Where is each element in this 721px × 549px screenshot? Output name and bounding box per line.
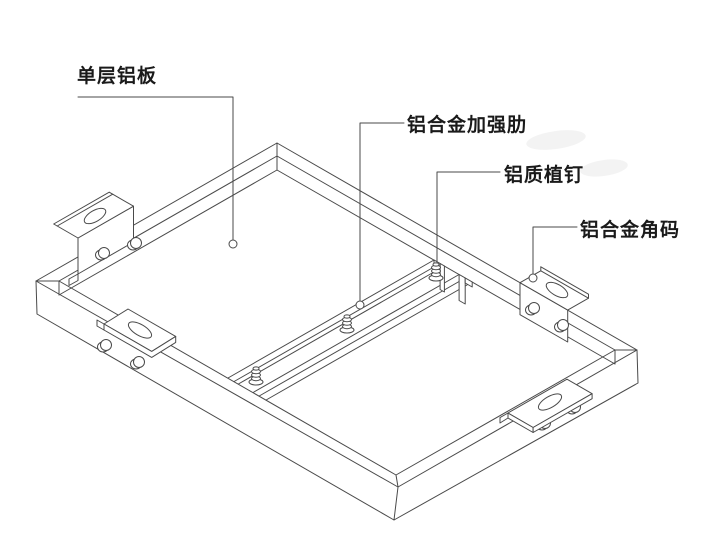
technical-diagram: 单层铝板 铝合金加强肋 铝质植钉 铝合金角码 (0, 0, 721, 549)
stud-3 (249, 367, 263, 385)
stud-2 (340, 315, 354, 333)
corner-bracket-2 (97, 309, 176, 369)
label-aluminum-stud: 铝质植钉 (504, 160, 584, 187)
corner-bracket-1 (54, 192, 142, 285)
corner-bracket-4 (500, 379, 592, 432)
label-aluminum-alloy-reinforcing-rib: 铝合金加强肋 (407, 110, 527, 137)
leader-stud (437, 172, 500, 262)
label-single-layer-aluminum-panel: 单层铝板 (77, 61, 157, 88)
label-aluminum-alloy-corner-bracket: 铝合金角码 (580, 215, 680, 242)
